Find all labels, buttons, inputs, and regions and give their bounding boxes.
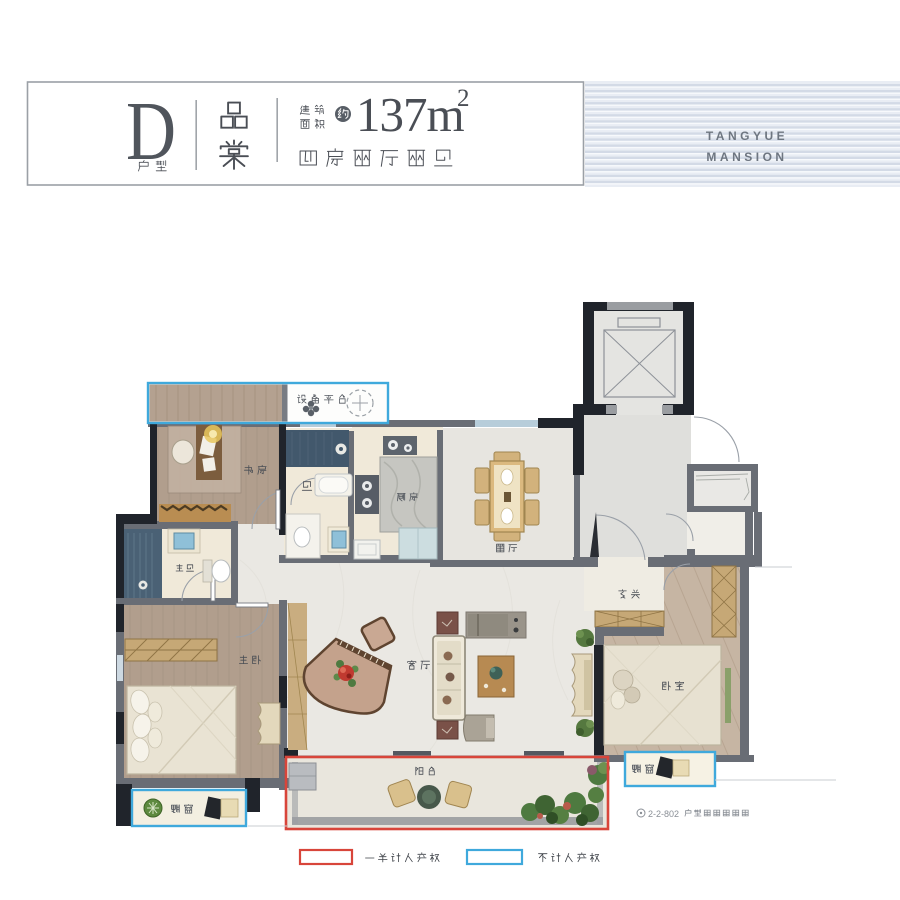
svg-text:D: D [126,85,176,178]
svg-text:TANGYUE: TANGYUE [706,129,788,143]
svg-text:2: 2 [457,85,470,112]
svg-text:2-2-802: 2-2-802 [648,809,679,819]
svg-text:MANSION: MANSION [706,150,787,164]
svg-text:137m: 137m [356,87,465,142]
